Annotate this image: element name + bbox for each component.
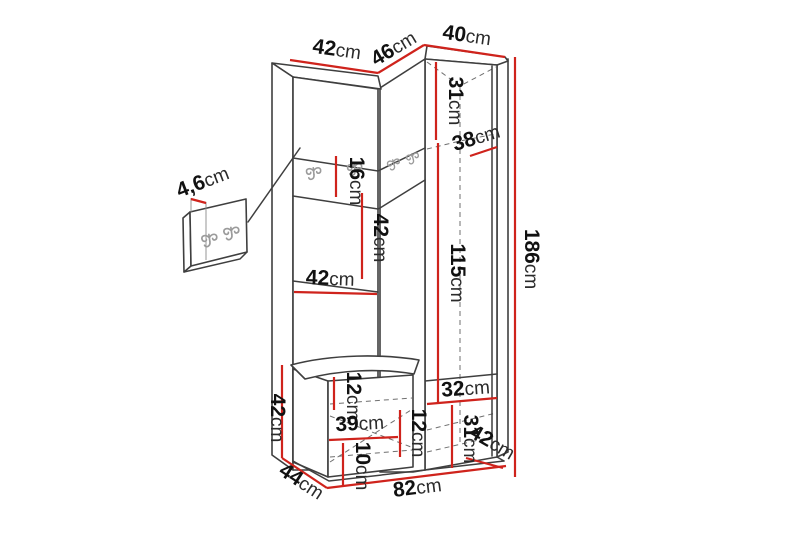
dimension-label-hook-band-height: 16cm: [345, 157, 368, 206]
dimension-label-shelf-width: 42cm: [305, 266, 354, 291]
dim-line-hook-panel-thickness: [191, 199, 206, 203]
dimension-label-bench-inner-width: 39cm: [335, 411, 385, 437]
dimension-label-top-width-corner: 40cm: [441, 21, 492, 51]
corner-side-face: [497, 59, 508, 457]
dimension-label-plinth-height: 10cm: [351, 442, 374, 491]
dimension-label-bench-inner-height: 12cm: [407, 409, 430, 458]
dimension-label-total-height: 186cm: [520, 229, 543, 289]
bench-left-side-face: [293, 369, 328, 477]
dimension-label-hook-panel-thickness: 4,6cm: [173, 161, 232, 202]
dimension-label-corner-inner-height: 115cm: [446, 243, 469, 302]
dimension-label-bench-height: 42cm: [266, 394, 289, 443]
dimension-label-top-width-left: 42cm: [311, 35, 362, 65]
dimension-label-total-width: 82cm: [392, 473, 443, 502]
dimension-diagram: 42cm 46cm 40cm 31cm 38cm 4,6cm 16cm 42cm…: [0, 0, 800, 533]
dimension-label-corner-bottom-width: 32cm: [440, 375, 490, 401]
dimension-label-open-section-height: 42cm: [369, 214, 392, 263]
furniture-drawing: 42cm 46cm 40cm 31cm 38cm 4,6cm 16cm 42cm…: [0, 0, 800, 533]
dimension-label-corner-top-height: 31cm: [444, 77, 467, 126]
